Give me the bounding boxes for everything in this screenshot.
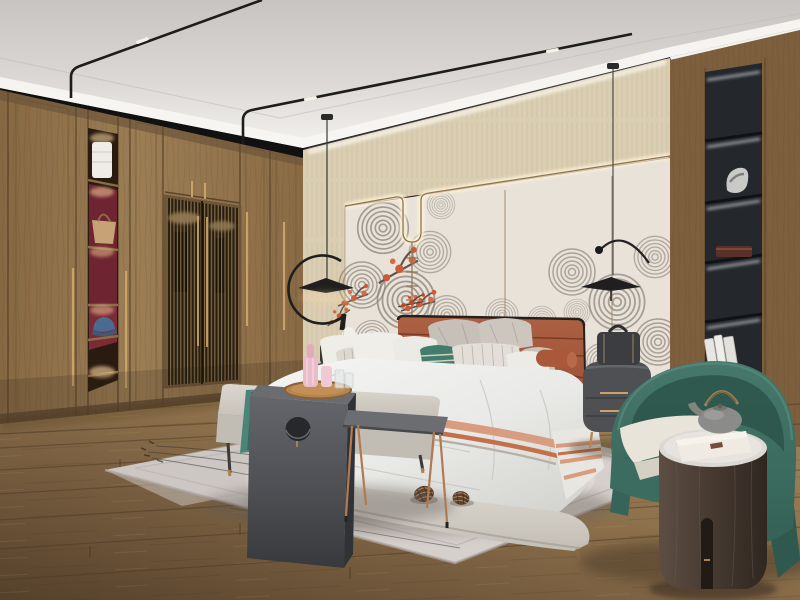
folded-towel (92, 142, 112, 178)
glass (345, 373, 353, 388)
niche-spotlight (90, 133, 114, 143)
lattice-doors (165, 181, 240, 387)
display-niches (88, 128, 118, 392)
pink-bottle-small (321, 366, 332, 387)
wooden-box (716, 246, 752, 257)
niche-spotlight (90, 305, 114, 315)
handbag (92, 220, 116, 244)
wardrobe (0, 90, 303, 424)
bedroom-illustration (0, 0, 800, 600)
niche-spotlight (90, 187, 114, 197)
pendant-canopy (321, 114, 333, 120)
shelf-unit (704, 63, 762, 395)
glass (335, 370, 344, 388)
pendant-arc-ball (595, 246, 603, 254)
pendant-canopy (607, 63, 619, 69)
decanter-stopper (307, 344, 314, 358)
c-table-hole (286, 417, 311, 441)
table-slot (701, 518, 713, 589)
pendant-light-pool (300, 291, 352, 305)
pillow-bolster-cap (567, 352, 577, 368)
pink-decanter (303, 356, 318, 387)
c-table (247, 385, 356, 568)
bedroom-photo (0, 0, 800, 600)
pendant-arc-weight (342, 314, 344, 330)
niche-spotlight (90, 247, 114, 257)
